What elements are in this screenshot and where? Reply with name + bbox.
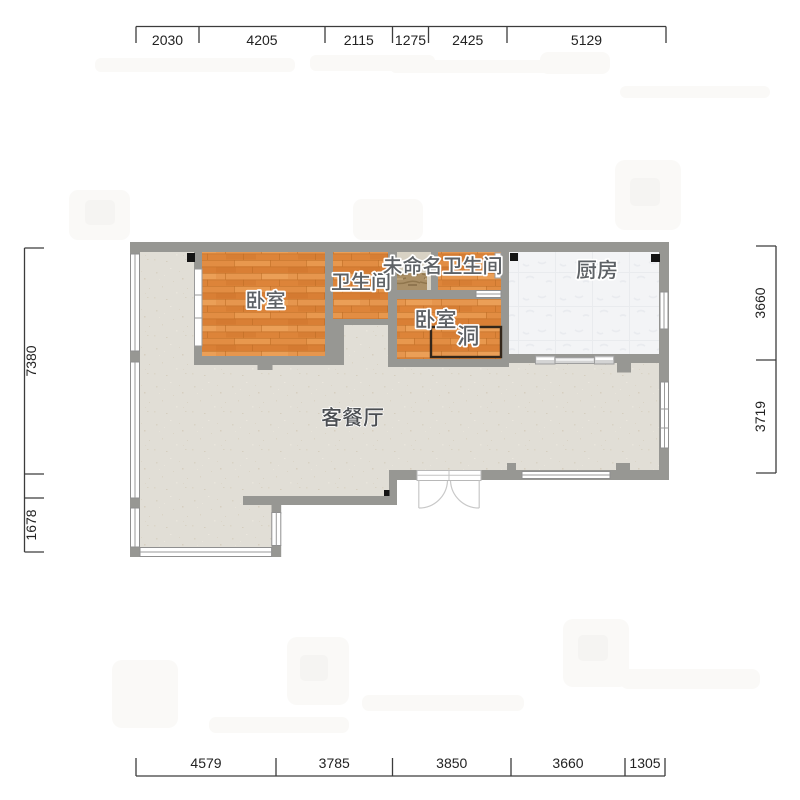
svg-text:1678: 1678 [23,509,39,540]
svg-text:1305: 1305 [629,755,660,771]
svg-text:7380: 7380 [23,345,39,376]
svg-text:2115: 2115 [344,32,374,48]
svg-text:1275: 1275 [395,32,426,48]
svg-text:3660: 3660 [752,287,768,318]
svg-text:3660: 3660 [552,755,583,771]
svg-text:5129: 5129 [571,32,602,48]
svg-text:3785: 3785 [319,755,350,771]
svg-text:2425: 2425 [452,32,483,48]
svg-text:4579: 4579 [190,755,221,771]
svg-text:3850: 3850 [436,755,467,771]
svg-text:2030: 2030 [152,32,183,48]
svg-text:3719: 3719 [752,401,768,432]
svg-text:4205: 4205 [246,32,277,48]
